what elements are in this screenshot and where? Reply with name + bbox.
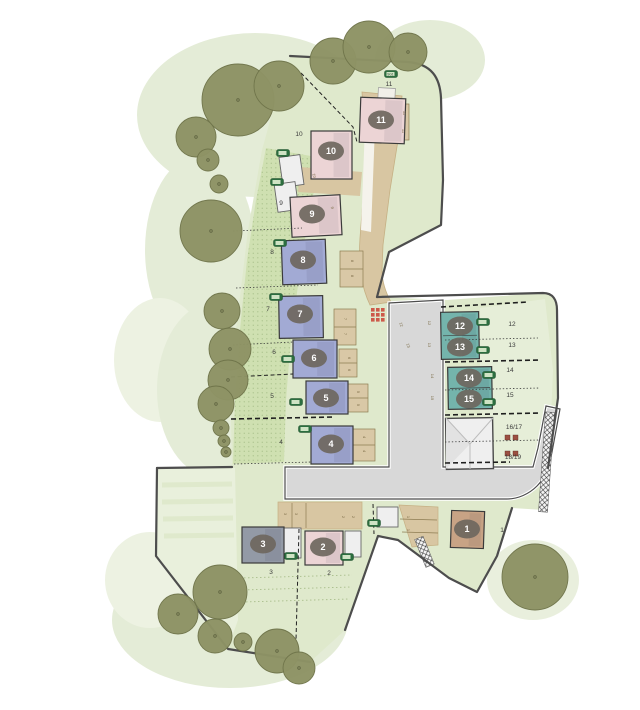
garden-plot-label: 3 xyxy=(269,569,273,576)
tree-icon xyxy=(204,293,240,329)
plot-badge-10: 10 xyxy=(318,142,344,161)
plot-badge-number: 10 xyxy=(326,146,336,156)
garden-plot-label: 15 xyxy=(506,392,514,399)
cycle-store-icon xyxy=(270,294,283,301)
cycle-store-icon xyxy=(477,319,490,326)
plot-badge-5: 5 xyxy=(313,389,339,408)
plot-badge-number: 13 xyxy=(455,342,465,352)
garden-plot-label: 16/17 xyxy=(506,424,523,431)
cycle-store-icon xyxy=(341,554,354,561)
garden-plot-label: 9 xyxy=(279,200,283,207)
plot-badge-4: 4 xyxy=(318,435,344,454)
tree-icon xyxy=(234,633,252,651)
parking-bay-label: 15 xyxy=(430,396,435,401)
plot-badge-14: 14 xyxy=(456,369,482,388)
cycle-store-icon xyxy=(483,399,496,406)
cycle-store-icon xyxy=(290,399,303,406)
cycle-store-icon xyxy=(299,426,312,433)
tree-icon xyxy=(389,33,427,71)
plot-badge-2: 2 xyxy=(310,538,336,557)
parking-bay-label: 12 xyxy=(427,321,432,326)
site-plan-canvas: 123456789101112131415 SG1 12345678910111… xyxy=(0,0,640,705)
garden-plot-label: 10 xyxy=(295,131,303,138)
tree-icon xyxy=(210,175,228,193)
tree-icon xyxy=(193,565,247,619)
plot-badge-6: 6 xyxy=(301,349,327,368)
garden-plot-label: 12 xyxy=(508,321,516,328)
tree-icon xyxy=(218,435,230,447)
plot-badge-number: 1 xyxy=(464,524,469,534)
plot-badge-15: 15 xyxy=(456,390,482,409)
garden-plot-label: 6 xyxy=(272,349,276,356)
tree-icon xyxy=(502,544,568,610)
tree-icon xyxy=(254,61,304,111)
garden-plot-label: 13 xyxy=(508,342,516,349)
garden-plot-label: 18/19 xyxy=(505,454,522,461)
garden-plot-label: 11 xyxy=(386,81,393,88)
cycle-store-icon xyxy=(285,553,298,560)
plot-badge-number: 12 xyxy=(455,321,465,331)
parking-bay-label: 14 xyxy=(430,374,435,379)
cycle-store-icon xyxy=(277,150,290,157)
plot-badge-number: 9 xyxy=(309,209,314,219)
tree-icon xyxy=(158,594,198,634)
tree-icon xyxy=(198,619,232,653)
tree-icon xyxy=(198,386,234,422)
plot-badge-7: 7 xyxy=(287,305,313,324)
tree-icon xyxy=(221,447,231,457)
plot-badge-number: 4 xyxy=(328,439,333,449)
plot-badge-number: 15 xyxy=(464,394,474,404)
tree-icon xyxy=(213,420,229,436)
plot-badge-number: 6 xyxy=(311,353,316,363)
garden-plot-label: 4 xyxy=(279,439,283,446)
cycle-store-icon xyxy=(282,356,295,363)
tree-icon xyxy=(180,200,242,262)
garden-plot-label: 2 xyxy=(327,570,331,577)
plot-badge-1: 1 xyxy=(454,520,480,539)
court-plots-2-3 xyxy=(278,502,362,529)
plot-badge-12: 12 xyxy=(447,317,473,336)
garden-plot-label: 8 xyxy=(270,249,274,256)
plot-badge-11: 11 xyxy=(368,111,394,130)
parking-bay-label: 13 xyxy=(427,343,432,348)
garden-plot-label: 5 xyxy=(270,393,274,400)
plot-badge-number: 14 xyxy=(464,373,474,383)
cycle-store-icon xyxy=(477,347,490,354)
garden-plot-label: 14 xyxy=(506,367,514,374)
plot-badge-number: 3 xyxy=(260,539,265,549)
plot-badge-3: 3 xyxy=(250,535,276,554)
plot-badge-number: 8 xyxy=(300,255,305,265)
tree-icon xyxy=(283,652,315,684)
plot-badge-number: 2 xyxy=(320,542,325,552)
plot-badge-number: 7 xyxy=(297,309,302,319)
store-label: SG1 xyxy=(387,72,394,76)
plot-badge-8: 8 xyxy=(290,251,316,270)
garage-plot-2 xyxy=(345,531,361,557)
cycle-store-icon xyxy=(483,372,496,379)
red-grid-marker xyxy=(371,308,385,322)
plot-badge-number: 5 xyxy=(323,393,328,403)
plot-badge-13: 13 xyxy=(447,338,473,357)
garden-plot-label: 1 xyxy=(500,527,504,534)
tree-icon xyxy=(197,149,219,171)
cycle-store-icon xyxy=(271,179,284,186)
plot-badge-9: 9 xyxy=(299,205,325,224)
tree-icon xyxy=(343,21,395,73)
garden-plot-label: 7 xyxy=(266,306,270,313)
cycle-store-icon: SG1 xyxy=(385,71,398,78)
cycle-store-icon xyxy=(368,520,381,527)
cycle-store-icon xyxy=(274,240,287,247)
plot-badge-number: 11 xyxy=(376,115,386,125)
